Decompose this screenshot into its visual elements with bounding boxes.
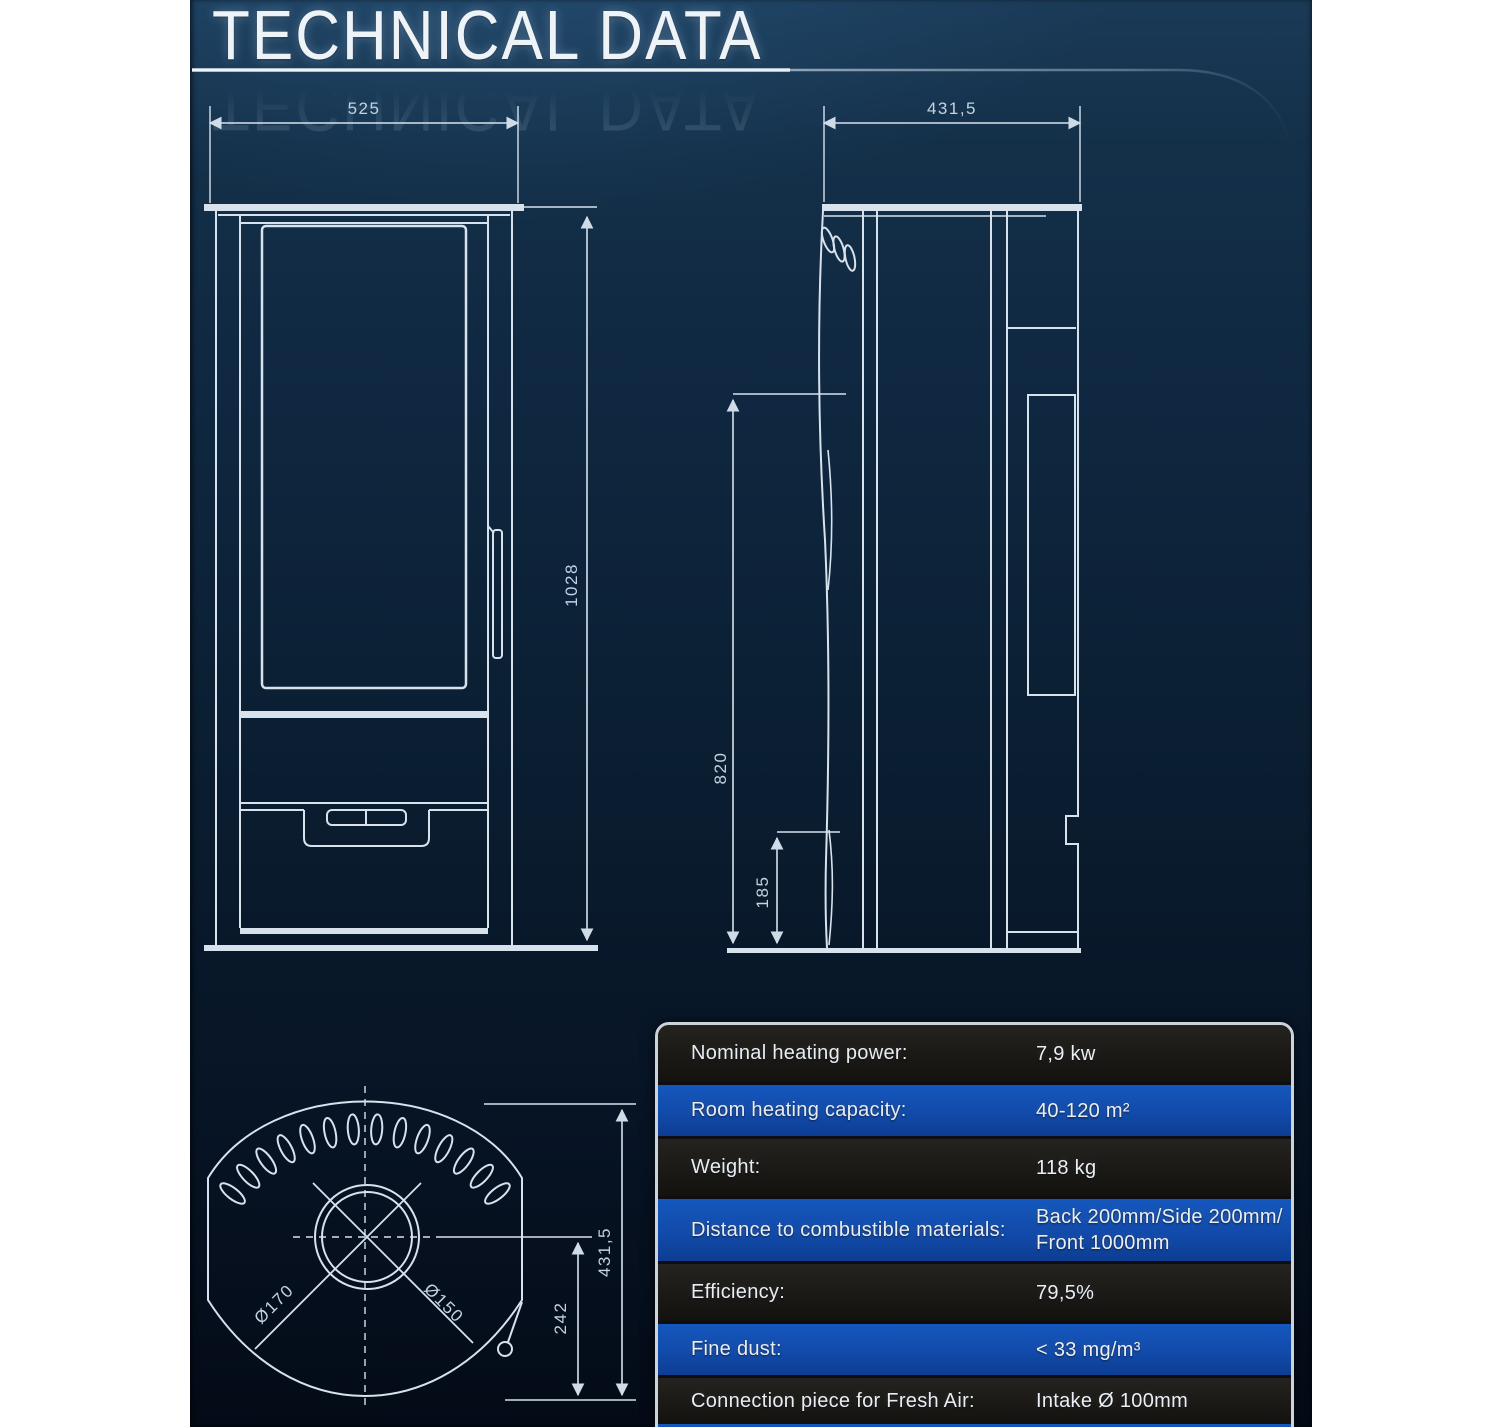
spec-value-line: Front 1000mm bbox=[1036, 1230, 1283, 1256]
spec-value-line: 118 kg bbox=[1036, 1155, 1096, 1181]
spec-label: Distance to combustible materials: bbox=[658, 1219, 1036, 1242]
spec-row: Efficiency:79,5% bbox=[658, 1264, 1291, 1321]
spec-row: Fine dust:< 33 mg/m³ bbox=[658, 1321, 1291, 1378]
spec-label: Fine dust: bbox=[658, 1338, 1036, 1361]
spec-value: 40-120 m² bbox=[1036, 1098, 1130, 1124]
spec-label: Efficiency: bbox=[658, 1281, 1036, 1304]
spec-row: Weight:118 kg bbox=[658, 1139, 1291, 1196]
spec-value-line: Intake Ø 100mm bbox=[1036, 1388, 1188, 1414]
spec-value: Intake Ø 100mm bbox=[1036, 1388, 1188, 1414]
spec-value-line: < 33 mg/m³ bbox=[1036, 1337, 1141, 1363]
spec-value: 79,5% bbox=[1036, 1280, 1094, 1306]
spec-value: Back 200mm/Side 200mm/Front 1000mm bbox=[1036, 1204, 1283, 1256]
spec-value-line: 7,9 kw bbox=[1036, 1041, 1096, 1067]
technical-data-sheet: TECHNICAL DATA TECHNICAL DATA bbox=[0, 0, 1500, 1427]
spec-value-line: 40-120 m² bbox=[1036, 1098, 1130, 1124]
spec-row: Connection piece for Fresh Air:Intake Ø … bbox=[658, 1378, 1291, 1424]
spec-label: Connection piece for Fresh Air: bbox=[658, 1390, 1036, 1413]
page-title-reflection: TECHNICAL DATA bbox=[212, 70, 762, 139]
spec-row: Room heating capacity:40-120 m² bbox=[658, 1082, 1291, 1139]
spec-value: < 33 mg/m³ bbox=[1036, 1337, 1141, 1363]
spec-value-line: 79,5% bbox=[1036, 1280, 1094, 1306]
spec-label: Nominal heating power: bbox=[658, 1042, 1036, 1065]
spec-value: 7,9 kw bbox=[1036, 1041, 1096, 1067]
spec-row: Nominal heating power:7,9 kw bbox=[658, 1025, 1291, 1082]
spec-value: 118 kg bbox=[1036, 1155, 1096, 1181]
spec-label: Room heating capacity: bbox=[658, 1099, 1036, 1122]
spec-label: Weight: bbox=[658, 1156, 1036, 1179]
spec-value-line: Back 200mm/Side 200mm/ bbox=[1036, 1204, 1283, 1230]
specifications-table: Nominal heating power:7,9 kwRoom heating… bbox=[655, 1022, 1294, 1427]
spec-row: Distance to combustible materials:Back 2… bbox=[658, 1196, 1291, 1264]
page-title: TECHNICAL DATA bbox=[212, 2, 762, 71]
